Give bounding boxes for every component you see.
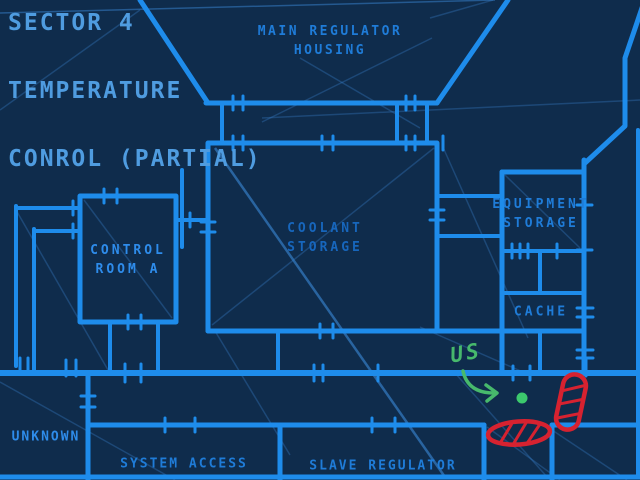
room-label-coolant-storage: COOLANT STORAGE bbox=[287, 219, 363, 257]
room-label-slave-regulator: SLAVE REGULATOR bbox=[309, 457, 456, 476]
room-label-cache: CACHE bbox=[514, 303, 568, 322]
map-title-line2: TEMPERATURE bbox=[8, 78, 182, 104]
map-title: SECTOR 4 TEMPERATURE CONROL (PARTIAL) bbox=[8, 6, 262, 176]
map-title-line1: SECTOR 4 bbox=[8, 10, 135, 36]
room-label-main-regulator-housing: MAIN REGULATOR HOUSING bbox=[258, 22, 403, 60]
red-annotations bbox=[487, 372, 588, 446]
player-position-dot bbox=[517, 393, 528, 404]
map-title-line3: CONROL (PARTIAL) bbox=[8, 146, 262, 172]
hazard-marker-horizontal bbox=[487, 419, 550, 446]
room-label-system-access: SYSTEM ACCESS bbox=[120, 455, 248, 474]
room-label-control-room-a: CONTROL ROOM A bbox=[90, 241, 166, 279]
blueprint-screen: SECTOR 4 TEMPERATURE CONROL (PARTIAL) MA… bbox=[0, 0, 640, 480]
room-label-equipment-storage: EQUIPMENT STORAGE bbox=[492, 195, 589, 233]
room-label-unknown: UNKNOWN bbox=[12, 428, 81, 447]
